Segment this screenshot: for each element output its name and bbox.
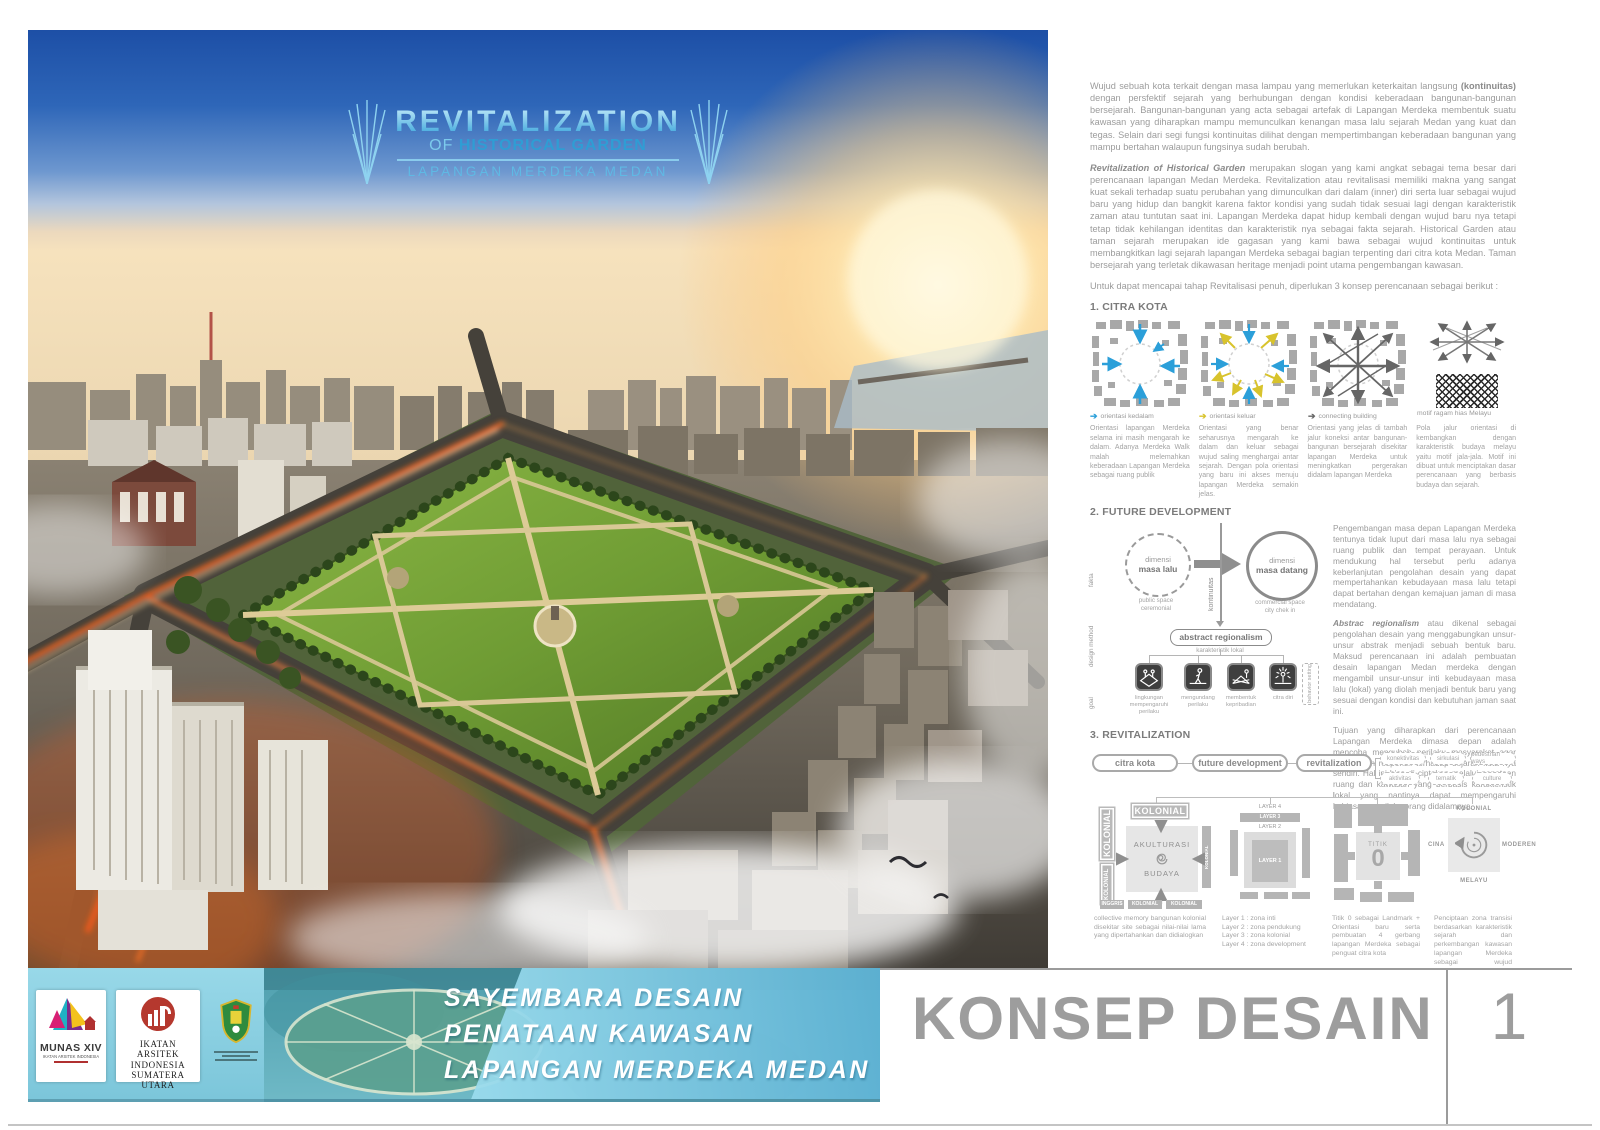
goal-caption-4: citra diri [1260, 695, 1306, 702]
page-bottom-rule [8, 1124, 1592, 1126]
connector [1283, 655, 1284, 663]
titik-0-box: TITIK 0 [1356, 832, 1400, 880]
diagram-orientasi-keluar: ➔orientasi keluar [1199, 318, 1299, 421]
hero-title: REVITALIZATION OF HISTORICAL GARDEN LAPA… [328, 100, 748, 184]
medan-shield-icon [217, 998, 255, 1044]
project-title-block: REVITALIZATION OF HISTORICAL GARDEN LAPA… [395, 105, 681, 179]
emblem-caption-line [214, 1051, 258, 1053]
zone-bar [1230, 830, 1238, 876]
map-inward-arrows-icon [1090, 318, 1190, 410]
goal-icon-membentuk [1227, 663, 1255, 691]
sheet-title: KONSEP DESAIN [912, 984, 1434, 1053]
jala-jala-pattern [1436, 374, 1498, 408]
zone-bar [1302, 828, 1310, 878]
future-development-section: fakta design method goal dimensi masa la… [1090, 523, 1516, 727]
intro-paragraph-1: Wujud sebuah kota terkait dengan masa la… [1090, 80, 1516, 153]
circle-dimensi-masa-datang: dimensi masa datang [1246, 531, 1318, 601]
iai-logo-icon [138, 994, 178, 1034]
zone-bar [1240, 892, 1258, 899]
dark-arrow-icon: ➔ [1308, 412, 1316, 421]
label-layer4: LAYER 4 [1224, 804, 1316, 810]
star-arrows-icon [1417, 318, 1517, 366]
emblem-caption-line [215, 1059, 257, 1061]
tag-culture: culture [1472, 772, 1512, 785]
label-kolonial-bottom1: KOLONIAL [1128, 900, 1162, 909]
goal-icon-mengundang [1184, 663, 1212, 691]
goal-caption-2: mengundang perilaku [1175, 695, 1221, 709]
section-heading-future-development: 2. FUTURE DEVELOPMENT [1090, 506, 1516, 518]
kontinuitas-label: kontinuitas [1208, 553, 1215, 611]
medan-city-emblem [212, 998, 260, 1061]
gate-icon [1374, 881, 1382, 889]
goal-caption-3: membentuk kepribadian [1218, 695, 1264, 709]
block [1408, 830, 1420, 876]
hero-render: REVITALIZATION OF HISTORICAL GARDEN LAPA… [28, 30, 1048, 968]
flow-box-future-development: future development [1192, 754, 1288, 772]
inward-arrows-icon [1098, 804, 1216, 910]
behavior-setting-label: behavior setting [1302, 663, 1319, 705]
legend-motif-melayu: motif ragam hias Melayu [1417, 410, 1517, 417]
munas-divider [54, 1061, 88, 1063]
tag-tematik: tematik [1428, 772, 1464, 785]
diagram-titik-0: TITIK 0 [1334, 804, 1420, 910]
title-divider [397, 159, 679, 161]
ornament-right-icon [689, 100, 729, 184]
future-development-diagram: fakta design method goal dimensi masa la… [1090, 523, 1330, 727]
spiral-arrow-icon [1455, 826, 1493, 864]
tag-sirkulasi: sirkulasi [1430, 752, 1466, 765]
label-cina: CINA [1428, 842, 1445, 848]
goal-icon-lingkungan [1135, 663, 1163, 691]
fd-paragraph-1: Pengembangan masa depan Lapangan Merdeka… [1333, 523, 1516, 611]
zone-bar [1264, 892, 1288, 899]
revitalization-diagrams: KOLONIAL KOLONIAL KOLONIAL KOLONIAL AKUL… [1090, 804, 1516, 912]
intro-p1-text: Wujud sebuah kota terkait dengan masa la… [1090, 81, 1461, 91]
project-title-line3: LAPANGAN MERDEKA MEDAN [395, 164, 681, 179]
revitalization-tree-connector [1090, 792, 1516, 804]
label-kolonial-bottom2: KOLONIAL [1166, 900, 1202, 909]
abstract-regionalism-box: abstract regionalism [1170, 629, 1272, 646]
ornament-left-icon [347, 100, 387, 184]
intro-paragraph-3: Untuk dapat mencapai tahap Revitalisasi … [1090, 280, 1516, 292]
intro-p1-rest: dengan persfektif sejarah yang berhubung… [1090, 93, 1516, 152]
connector [1149, 655, 1283, 656]
intro-p1-bold: (kontinuitas) [1461, 81, 1516, 91]
caption-2: Orientasi yang benar seharusnya mengarah… [1199, 424, 1299, 500]
block [1388, 892, 1414, 902]
map-connections-icon [1308, 318, 1408, 410]
diagram-connecting-building: ➔connecting building [1308, 318, 1408, 421]
emblem-caption-line [222, 1055, 250, 1057]
sheet-number: 1 [1446, 978, 1572, 1054]
footer: MUNAS XIV IKATAN ARSITEK INDONESIA IKATA… [28, 968, 1572, 1102]
flow-box-revitalization: revitalization [1296, 754, 1372, 772]
connector [1270, 797, 1271, 804]
label-layer1: LAYER 1 [1252, 840, 1288, 882]
diagram-akulturasi-budaya: KOLONIAL KOLONIAL KOLONIAL KOLONIAL AKUL… [1098, 804, 1216, 910]
citra-kota-diagrams: ➔orientasi kedalam ➔orientasi keluar [1090, 318, 1516, 421]
diagram-layers: LAYER 4 LAYER 3 LAYER 2 LAYER 1 [1224, 804, 1316, 910]
block [1360, 892, 1382, 902]
competition-board: REVITALIZATION OF HISTORICAL GARDEN LAPA… [0, 0, 1600, 1130]
munas-title: MUNAS XIV [36, 1042, 106, 1054]
munas-subtitle: IKATAN ARSITEK INDONESIA [36, 1054, 106, 1059]
big-right-arrow-icon [1194, 551, 1242, 577]
intro-p2-lead: Revitalization of Historical Garden [1090, 163, 1245, 173]
circle-dimensi-masa-lalu: dimensi masa lalu [1125, 533, 1191, 597]
connector [1377, 797, 1378, 804]
gate-icon [1401, 852, 1409, 860]
yellow-arrow-icon: ➔ [1199, 412, 1207, 421]
footer-logos-band: MUNAS XIV IKATAN ARSITEK INDONESIA IKATA… [28, 968, 264, 1102]
label-layer3: LAYER 3 [1240, 813, 1300, 822]
label-inggris: INGGRIS [1100, 900, 1124, 909]
connector [1288, 763, 1296, 764]
connector [1156, 797, 1473, 798]
competition-title-line2: PENATAAN KAWASAN [444, 1016, 870, 1052]
gate-icon [1347, 852, 1355, 860]
competition-title-line1: SAYEMBARA DESAIN [444, 980, 870, 1016]
legend-orientasi-kedalam: ➔orientasi kedalam [1090, 412, 1190, 421]
flow-box-citra-kota: citra kota [1092, 754, 1178, 772]
zone-bar [1292, 892, 1310, 899]
diagram-motif-melayu: motif ragam hias Melayu [1417, 318, 1517, 421]
connector [1156, 797, 1157, 804]
goal-caption-1: lingkungan mempengaruhi perilaku [1126, 695, 1172, 717]
block [1358, 804, 1408, 826]
legend-orientasi-keluar: ➔orientasi keluar [1199, 412, 1299, 421]
axis-label-fakta: fakta [1088, 541, 1095, 587]
project-title-line1: REVITALIZATION [395, 105, 681, 139]
iai-sumut-logo: IKATAN ARSITEK INDONESIA SUMATERA UTARA [116, 990, 200, 1082]
circle1-caption: public spaceceremonial [1116, 597, 1196, 613]
circle2-caption: commercial spacecity chek in [1238, 599, 1322, 615]
connector [1472, 797, 1473, 804]
legend-connecting-building: ➔connecting building [1308, 412, 1408, 421]
connector [1149, 655, 1150, 663]
gate-icon [1374, 825, 1382, 833]
axis-label-design-method: design method [1088, 607, 1095, 667]
tag-konektivitas: konektivitas [1380, 752, 1426, 765]
caption-3: Orientasi yang jelas di tambah jalur kon… [1308, 424, 1408, 500]
blue-arrow-icon: ➔ [1090, 412, 1098, 421]
diagram-orientasi-kedalam: ➔orientasi kedalam [1090, 318, 1190, 421]
fd-paragraph-2: Abstrac regionalism atau dikenal sebagai… [1333, 618, 1516, 716]
connector [1178, 763, 1192, 764]
map-outward-arrows-icon [1199, 318, 1299, 410]
munas-xiv-logo: MUNAS XIV IKATAN ARSITEK INDONESIA [36, 990, 106, 1082]
intro-paragraph-2: Revitalization of Historical Garden meru… [1090, 162, 1516, 271]
caption-4: Pola jalur orientasi di kembangkan denga… [1416, 424, 1516, 500]
munas-logo-icon [39, 990, 103, 1036]
tag-aktivitas: aktivitas [1380, 772, 1420, 785]
block [1334, 888, 1354, 900]
connector [1375, 758, 1376, 779]
competition-title: SAYEMBARA DESAIN PENATAAN KAWASAN LAPANG… [444, 980, 870, 1088]
label-melayu: MELAYU [1434, 878, 1514, 884]
label-kolonial: KOLONIAL [1434, 806, 1514, 812]
block [1334, 834, 1348, 882]
transition-box [1448, 818, 1500, 872]
goal-icon-citra-diri [1269, 663, 1297, 691]
kontinuitas-line [1220, 523, 1222, 623]
revitalization-flow: citra kota future development revitaliza… [1090, 746, 1516, 792]
tag-pedestrian-ways: pedestrian ways [1470, 752, 1516, 765]
concept-column: Wujud sebuah kota terkait dengan masa la… [1090, 80, 1516, 994]
citra-kota-captions: Orientasi lapangan Merdeka selama ini ma… [1090, 424, 1516, 500]
connector [1198, 655, 1199, 663]
block [1334, 804, 1352, 828]
caption-1: Orientasi lapangan Merdeka selama ini ma… [1090, 424, 1190, 500]
axis-label-goal: goal [1088, 679, 1095, 709]
diagram-zona-transisi: KOLONIAL CINA MODEREN MELAYU [1434, 804, 1514, 910]
competition-title-line3: LAPANGAN MERDEKA MEDAN [444, 1052, 870, 1088]
label-moderen: MODEREN [1502, 842, 1536, 848]
section-heading-citra-kota: 1. CITRA KOTA [1090, 301, 1516, 313]
sheet-title-block: KONSEP DESAIN 1 [880, 968, 1572, 1126]
footer-banner: SAYEMBARA DESAIN PENATAAN KAWASAN LAPANG… [264, 968, 880, 1102]
intro-p2-text: merupakan slogan yang kami angkat sebaga… [1090, 163, 1516, 270]
kontinuitas-arrowhead-icon [1216, 621, 1224, 627]
connector [1241, 655, 1242, 663]
project-title-line2: OF HISTORICAL GARDEN [395, 137, 681, 155]
